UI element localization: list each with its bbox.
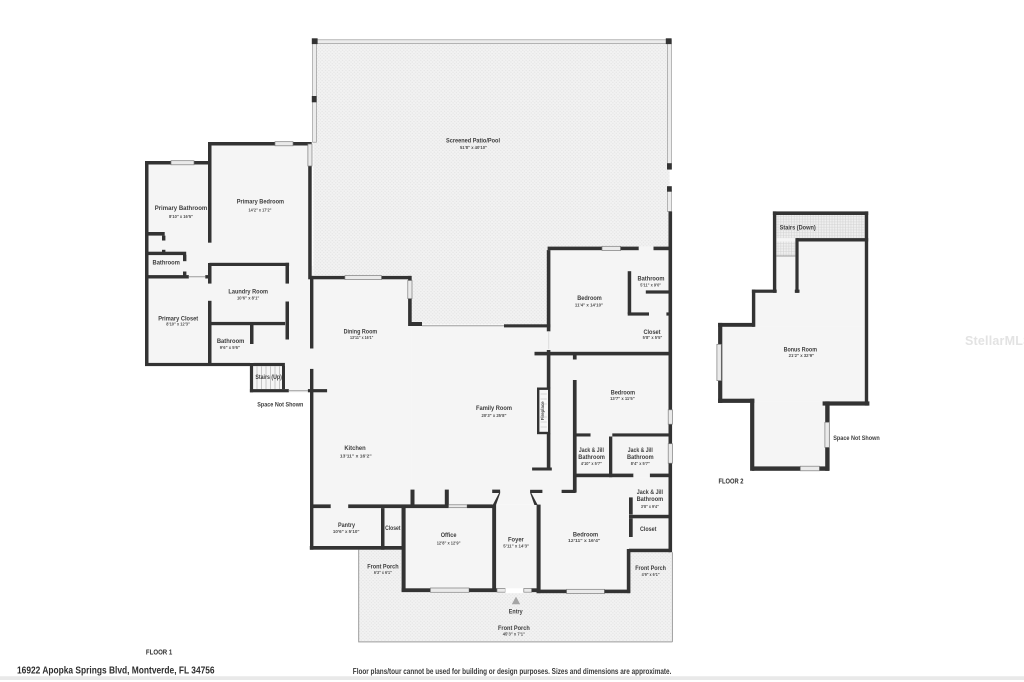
svg-text:Bathroom: Bathroom [578, 454, 605, 461]
svg-text:13’11" x 16’1": 13’11" x 16’1" [350, 335, 373, 340]
svg-text:Floor plans/tour cannot be use: Floor plans/tour cannot be used for buil… [353, 667, 672, 676]
svg-text:StellarMLS: StellarMLS [965, 334, 1024, 348]
svg-text:45’3" x 7’1": 45’3" x 7’1" [503, 632, 525, 637]
svg-text:20’3" x 25’8": 20’3" x 25’8" [482, 413, 507, 418]
svg-text:10’6" x 8’1": 10’6" x 8’1" [237, 295, 259, 300]
svg-text:Stairs (Down): Stairs (Down) [780, 224, 816, 231]
svg-text:Fireplace: Fireplace [540, 401, 545, 420]
svg-text:13’7" x 11’5": 13’7" x 11’5" [610, 396, 635, 401]
svg-text:Bathroom: Bathroom [627, 454, 654, 461]
svg-text:8’10" x 12’3": 8’10" x 12’3" [166, 322, 190, 327]
svg-text:Closet: Closet [640, 526, 657, 533]
svg-text:Primary Bathroom: Primary Bathroom [155, 205, 208, 212]
svg-text:5’8" x 5’5": 5’8" x 5’5" [643, 335, 663, 340]
svg-text:Stairs (Up): Stairs (Up) [255, 374, 282, 381]
svg-text:Foyer: Foyer [508, 537, 524, 544]
svg-text:11’4" x 14’10": 11’4" x 14’10" [575, 303, 603, 308]
svg-text:Bathroom: Bathroom [637, 496, 664, 503]
svg-text:Bathroom: Bathroom [153, 259, 180, 266]
svg-text:5’11" x 9’0": 5’11" x 9’0" [640, 283, 661, 288]
svg-text:16922 Apopka Springs Blvd, Mon: 16922 Apopka Springs Blvd, Montverde, FL… [17, 665, 215, 677]
svg-text:Bathroom: Bathroom [638, 275, 665, 282]
svg-text:Kitchen: Kitchen [344, 445, 365, 452]
svg-text:Entry: Entry [509, 609, 523, 616]
svg-text:21’2" x 32’9": 21’2" x 32’9" [789, 353, 815, 358]
svg-text:9’6" x 5’6": 9’6" x 5’6" [220, 345, 240, 350]
svg-text:Front Porch: Front Porch [635, 565, 666, 572]
svg-text:4’9" x 6’1": 4’9" x 6’1" [642, 572, 660, 577]
svg-text:3’8" x 9’4": 3’8" x 9’4" [641, 504, 659, 509]
svg-text:Primary Bedroom: Primary Bedroom [237, 198, 284, 205]
svg-text:12’8" x 12’9": 12’8" x 12’9" [437, 541, 461, 546]
svg-text:FLOOR 2: FLOOR 2 [719, 476, 744, 485]
svg-text:6’3" x 6’1": 6’3" x 6’1" [374, 570, 392, 575]
svg-text:Family Room: Family Room [476, 405, 512, 412]
svg-text:5’11" x 14’3": 5’11" x 14’3" [503, 544, 529, 549]
svg-text:Closet: Closet [385, 525, 401, 532]
svg-text:51’8" x 40’10": 51’8" x 40’10" [460, 145, 487, 150]
svg-text:Space Not Shown: Space Not Shown [257, 402, 303, 409]
svg-text:Space Not Shown: Space Not Shown [833, 435, 880, 442]
svg-text:8’10" x 16’5": 8’10" x 16’5" [169, 214, 193, 219]
svg-text:12’11" x 16’4": 12’11" x 16’4" [568, 538, 600, 543]
svg-text:Jack & Jill: Jack & Jill [637, 489, 663, 496]
svg-text:13’11" x 16’2": 13’11" x 16’2" [340, 453, 372, 458]
svg-text:Bedroom: Bedroom [577, 295, 602, 302]
svg-text:14’2" x 17’2": 14’2" x 17’2" [249, 208, 272, 213]
svg-text:Screened Patio/Pool: Screened Patio/Pool [446, 138, 500, 145]
svg-text:10’6" x 5’10": 10’6" x 5’10" [333, 529, 360, 534]
svg-text:FLOOR 1: FLOOR 1 [146, 648, 172, 657]
svg-text:Bathroom: Bathroom [217, 338, 245, 345]
svg-text:Office: Office [441, 532, 457, 539]
svg-text:8’4" x 5’7": 8’4" x 5’7" [631, 461, 650, 466]
svg-text:4’10" x 5’7": 4’10" x 5’7" [581, 461, 602, 466]
